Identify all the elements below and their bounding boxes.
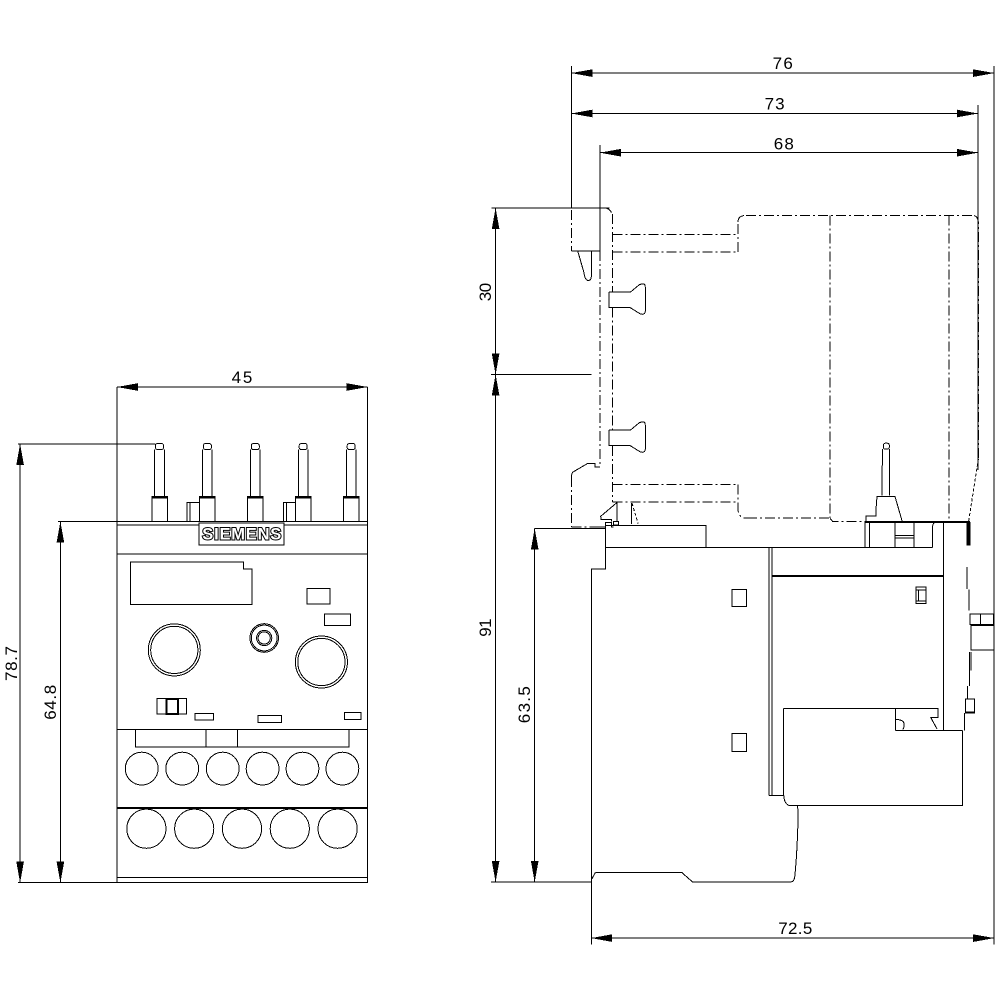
svg-text:45: 45 [232,368,253,387]
svg-text:72.5: 72.5 [778,919,812,938]
svg-text:91: 91 [476,618,495,636]
svg-text:63.5: 63.5 [515,686,534,723]
svg-text:78.7: 78.7 [2,646,21,681]
svg-text:73: 73 [765,95,785,114]
svg-text:76: 76 [773,54,793,73]
svg-text:68: 68 [774,135,794,154]
svg-text:30: 30 [476,283,495,301]
svg-text:64.8: 64.8 [41,685,60,720]
svg-text:SIEMENS: SIEMENS [202,525,281,543]
